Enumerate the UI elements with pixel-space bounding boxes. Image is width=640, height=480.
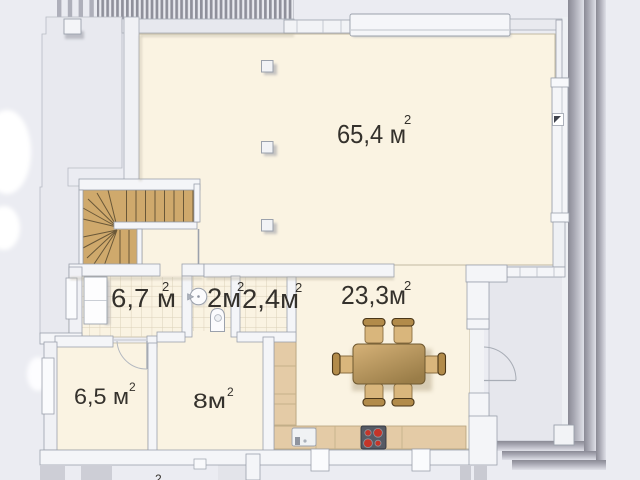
svg-text:8м: 8м	[193, 390, 226, 413]
svg-text:2: 2	[129, 380, 136, 394]
svg-text:2: 2	[227, 385, 234, 399]
svg-text:2м: 2м	[207, 283, 241, 313]
svg-text:2: 2	[162, 279, 169, 294]
svg-text:2: 2	[404, 112, 411, 127]
svg-text:2: 2	[295, 280, 302, 295]
svg-text:2: 2	[155, 472, 162, 480]
svg-text:2,4м: 2,4м	[242, 284, 299, 314]
svg-text:65,4 м: 65,4 м	[337, 119, 406, 149]
svg-text:2: 2	[404, 278, 411, 293]
svg-text:6,5 м: 6,5 м	[74, 384, 129, 409]
svg-text:23,3м: 23,3м	[341, 280, 406, 310]
